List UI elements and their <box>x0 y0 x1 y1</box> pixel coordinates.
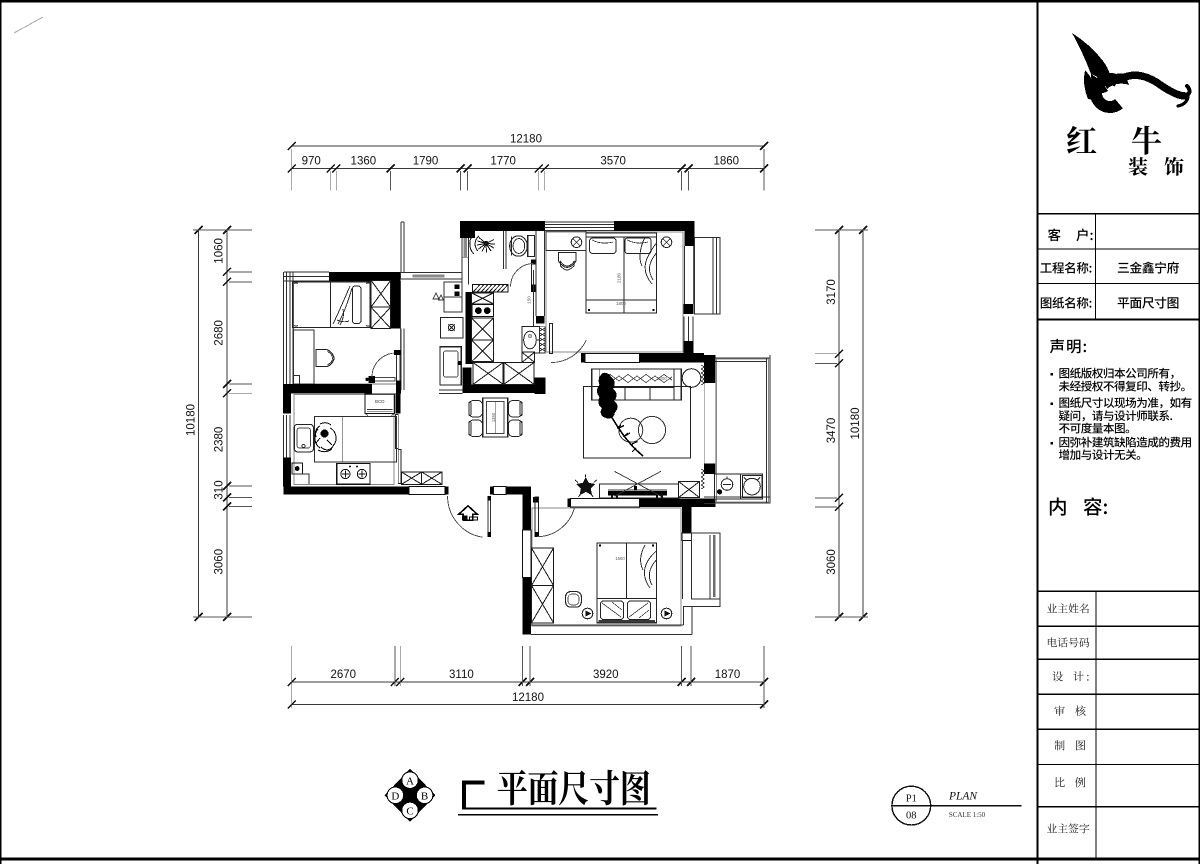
svg-text:3060: 3060 <box>826 549 838 575</box>
svg-text:2380: 2380 <box>214 427 226 453</box>
svg-text:P1: P1 <box>906 794 917 805</box>
svg-text:3920: 3920 <box>593 669 619 681</box>
svg-text:12180: 12180 <box>510 134 542 146</box>
svg-text:2180: 2180 <box>617 272 622 283</box>
svg-text:1800: 1800 <box>616 301 627 306</box>
svg-text:A: A <box>406 775 414 787</box>
svg-text:970: 970 <box>302 156 321 168</box>
svg-text:12180: 12180 <box>512 692 544 704</box>
svg-text:10180: 10180 <box>850 408 862 440</box>
svg-text:B: B <box>421 791 428 803</box>
svg-text:3570: 3570 <box>600 156 626 168</box>
svg-text:3060: 3060 <box>214 549 226 575</box>
svg-text:3470: 3470 <box>826 418 838 444</box>
svg-text:1360: 1360 <box>351 156 377 168</box>
svg-text:1350: 1350 <box>491 412 496 422</box>
svg-text:2670: 2670 <box>330 669 356 681</box>
svg-text:1860: 1860 <box>713 156 739 168</box>
svg-text:PLAN: PLAN <box>948 791 978 803</box>
svg-text:BCD: BCD <box>375 399 385 404</box>
svg-text:08: 08 <box>906 811 917 822</box>
svg-text:1500: 1500 <box>615 556 625 561</box>
svg-text:1770: 1770 <box>490 156 516 168</box>
svg-text:1790: 1790 <box>413 156 439 168</box>
svg-text:310: 310 <box>214 480 226 499</box>
svg-text:SCALE 1:50: SCALE 1:50 <box>949 811 986 819</box>
svg-text:150: 150 <box>527 296 532 304</box>
svg-text:3110: 3110 <box>449 669 474 681</box>
svg-text:1060: 1060 <box>214 238 226 264</box>
svg-text:C: C <box>406 806 413 818</box>
svg-text:10180: 10180 <box>186 404 198 436</box>
svg-text:3170: 3170 <box>826 279 838 305</box>
svg-text:2680: 2680 <box>214 320 226 346</box>
svg-text:3200: 3200 <box>657 376 667 381</box>
svg-text:1870: 1870 <box>715 669 741 681</box>
svg-text:D: D <box>391 791 399 803</box>
